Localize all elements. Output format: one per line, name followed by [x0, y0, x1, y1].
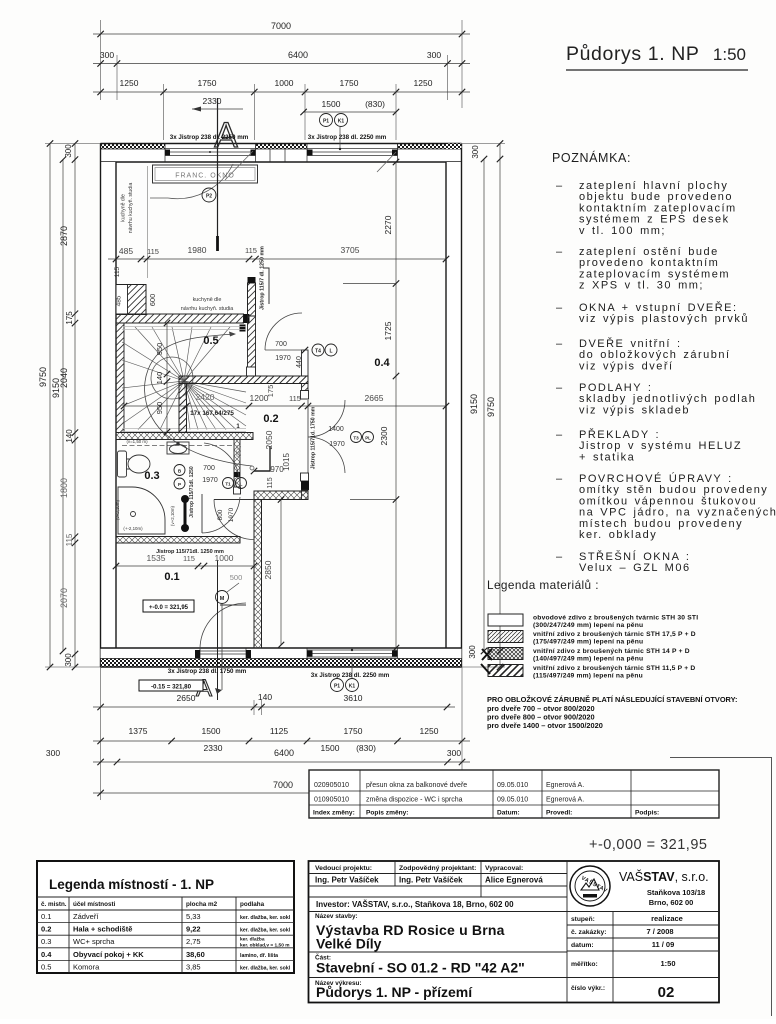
svg-text:č. zakázky:: č. zakázky: — [571, 929, 607, 936]
svg-text:L: L — [240, 482, 243, 487]
svg-text:010905010: 010905010 — [314, 797, 349, 804]
svg-text:1750: 1750 — [344, 726, 363, 736]
svg-text:1000: 1000 — [215, 553, 234, 563]
svg-text:140: 140 — [258, 692, 272, 702]
svg-text:kuchyně dle: kuchyně dle — [121, 194, 127, 222]
svg-text:950: 950 — [155, 343, 164, 356]
svg-text:1250: 1250 — [420, 726, 439, 736]
svg-text:0.2: 0.2 — [263, 413, 278, 425]
svg-text:PL: PL — [365, 436, 371, 441]
svg-text:0.5: 0.5 — [41, 962, 51, 971]
svg-text:300: 300 — [468, 645, 477, 659]
svg-text:DVEŘE vnitřní :: DVEŘE vnitřní : — [579, 337, 682, 350]
svg-text:1750: 1750 — [198, 78, 217, 88]
svg-text:3705: 3705 — [341, 245, 360, 255]
svg-text:3610: 3610 — [344, 693, 363, 703]
svg-text:950: 950 — [155, 402, 164, 415]
svg-text:Komora: Komora — [73, 962, 100, 971]
svg-text:1980: 1980 — [188, 245, 207, 255]
svg-text:09.05.010: 09.05.010 — [497, 797, 528, 804]
svg-text:3x Jistrop 238 dl. 1750 mm: 3x Jistrop 238 dl. 1750 mm — [168, 668, 247, 675]
svg-text:K1: K1 — [338, 119, 345, 125]
svg-text:viz výpis skladeb: viz výpis skladeb — [579, 404, 690, 416]
svg-text:0.4: 0.4 — [374, 357, 390, 369]
svg-text:9750: 9750 — [486, 397, 496, 417]
svg-text:(830): (830) — [365, 99, 385, 109]
svg-text:1000: 1000 — [275, 78, 294, 88]
svg-text:objektu bude provedeno: objektu bude provedeno — [579, 191, 733, 203]
svg-text:09.05.010: 09.05.010 — [497, 782, 528, 789]
svg-text:P2: P2 — [206, 194, 212, 200]
svg-text:(300/247/249 mm) lepení na pěn: (300/247/249 mm) lepení na pěnu — [533, 622, 643, 629]
svg-text:0.2: 0.2 — [41, 925, 51, 934]
svg-text:P1: P1 — [323, 119, 329, 125]
svg-text:vnitřní zdivo z broušených tár: vnitřní zdivo z broušených tárnic STH 14… — [533, 648, 690, 655]
svg-text:(+-2,10m): (+-2,10m) — [123, 526, 143, 531]
svg-text:2050: 2050 — [264, 430, 274, 449]
svg-text:1:50: 1:50 — [660, 959, 675, 968]
svg-text:020905010: 020905010 — [314, 782, 349, 789]
svg-text:2300: 2300 — [379, 426, 389, 445]
svg-text:1970: 1970 — [202, 477, 218, 484]
svg-text:38,60: 38,60 — [186, 950, 205, 959]
svg-text:zateplení hlavní plochy: zateplení hlavní plochy — [579, 180, 728, 192]
svg-text:Ing. Petr Vašíček: Ing. Petr Vašíček — [315, 876, 379, 885]
svg-text:1015: 1015 — [282, 453, 291, 471]
svg-text:do obložkových zárubní: do obložkových zárubní — [579, 349, 731, 361]
svg-text:1250: 1250 — [414, 78, 433, 88]
svg-text:PRO OBLOŽKOVÉ ZÁRUBNĚ PLATÍ: PRO OBLOŽKOVÉ ZÁRUBNĚ PLATÍ NÁSLEDUJÍCÍ … — [487, 695, 737, 704]
svg-text:300: 300 — [64, 144, 73, 158]
svg-text:Půdorys 1. NP: Půdorys 1. NP — [566, 43, 700, 65]
svg-text:2850: 2850 — [263, 560, 273, 579]
svg-text:Stavební - SO 01.2 - RD "42 A2: Stavební - SO 01.2 - RD "42 A2" — [316, 960, 525, 976]
svg-text:T1: T1 — [225, 482, 231, 487]
svg-text:OKNA + vstupní DVEŘE:: OKNA + vstupní DVEŘE: — [579, 301, 738, 314]
svg-text:0.1: 0.1 — [41, 912, 51, 921]
svg-text:ker. dlažba, ker. sokl: ker. dlažba, ker. sokl — [240, 915, 291, 921]
svg-text:PODLAHY :: PODLAHY : — [579, 382, 653, 394]
svg-text:115: 115 — [245, 246, 257, 255]
svg-text:účel místnosti: účel místnosti — [73, 901, 116, 908]
svg-text:ker. dlažba: ker. dlažba — [240, 937, 265, 943]
svg-text:viz výpis dveří: viz výpis dveří — [579, 360, 674, 372]
svg-text:9,22: 9,22 — [186, 925, 201, 934]
svg-text:2,75: 2,75 — [186, 937, 201, 946]
svg-text:2330: 2330 — [203, 96, 222, 106]
svg-text:1400: 1400 — [328, 426, 344, 433]
svg-text:obvodové zdivo z broušených t: obvodové zdivo z broušených tvárnic STH … — [533, 615, 698, 622]
svg-text:115: 115 — [289, 394, 301, 403]
svg-text:Vedoucí projektu:: Vedoucí projektu: — [315, 865, 372, 872]
svg-text:3x Jistrop 238 dl. 2250 mm: 3x Jistrop 238 dl. 2250 mm — [170, 134, 249, 141]
svg-text:02: 02 — [658, 984, 675, 1001]
svg-text:(175/497/249 mm) lepení na pěn: (175/497/249 mm) lepení na pěnu — [533, 639, 643, 646]
svg-text:(v=1,50 m): (v=1,50 m) — [126, 439, 148, 444]
svg-text:na VPC jádro, na vyznačených: na VPC jádro, na vyznačených — [579, 507, 776, 519]
svg-text:Index změny:: Index změny: — [313, 810, 355, 817]
svg-text:z XPS v tl. 30 mm;: z XPS v tl. 30 mm; — [579, 280, 704, 292]
svg-text:vnitřní zdivo z broušených tár: vnitřní zdivo z broušených tárnic STH 17… — [533, 631, 696, 638]
svg-text:2330: 2330 — [204, 743, 223, 753]
svg-text:–: – — [556, 302, 563, 314]
svg-text:115: 115 — [65, 533, 74, 546]
svg-text:3x Jistrop 238 dl. 2250 mm: 3x Jistrop 238 dl. 2250 mm — [308, 134, 387, 141]
svg-text:Vypracoval:: Vypracoval: — [485, 865, 523, 872]
svg-text:–: – — [556, 180, 563, 192]
svg-text:Zádveří: Zádveří — [73, 912, 99, 921]
svg-text:115: 115 — [114, 266, 121, 277]
svg-text:kuchyně dle: kuchyně dle — [193, 297, 222, 303]
svg-text:K1: K1 — [349, 684, 356, 690]
svg-text:1800: 1800 — [59, 478, 69, 498]
svg-text:600: 600 — [148, 294, 157, 307]
svg-text:Investor: VAŠSTAV, s.r.o.,: Investor: VAŠSTAV, s.r.o., Staňkova 18, … — [316, 900, 514, 909]
svg-text:2070: 2070 — [59, 588, 69, 608]
svg-text:–: – — [556, 551, 563, 563]
svg-text:11 / 09: 11 / 09 — [652, 940, 675, 949]
svg-text:skladby jednotlivých podlah: skladby jednotlivých podlah — [579, 393, 756, 405]
svg-text:–: – — [556, 429, 563, 441]
svg-text:115: 115 — [183, 554, 195, 563]
svg-text:6400: 6400 — [274, 748, 294, 758]
svg-text:0.3: 0.3 — [41, 937, 51, 946]
svg-text:3,85: 3,85 — [186, 962, 201, 971]
svg-text:návrhu kuchyň. studia: návrhu kuchyň. studia — [128, 183, 134, 234]
svg-text:PŘEKLADY :: PŘEKLADY : — [579, 428, 660, 441]
svg-text:300: 300 — [46, 748, 60, 758]
svg-text:(v=2,10m): (v=2,10m) — [115, 500, 120, 520]
svg-text:v tl. 100 mm;: v tl. 100 mm; — [579, 225, 666, 237]
svg-text:485: 485 — [119, 246, 133, 256]
svg-text:0.1: 0.1 — [164, 571, 179, 583]
svg-text:P: P — [178, 482, 181, 487]
svg-text:1125: 1125 — [270, 726, 289, 736]
svg-text:2270: 2270 — [383, 215, 393, 234]
svg-text:Staňkova 103/18: Staňkova 103/18 — [647, 888, 705, 897]
svg-text:datum:: datum: — [571, 942, 594, 949]
svg-text:140: 140 — [65, 429, 74, 443]
svg-text:omítky stěn budou provedeny: omítky stěn budou provedeny — [579, 484, 768, 496]
svg-text:pro dveře 1400 – otvor 1500/: pro dveře 1400 – otvor 1500/2020 — [487, 721, 603, 730]
svg-text:3x Jistrop 238 dl. 2250 mm: 3x Jistrop 238 dl. 2250 mm — [311, 672, 390, 679]
svg-text:2420: 2420 — [196, 392, 215, 402]
svg-text:175: 175 — [65, 311, 74, 325]
svg-text:P1: P1 — [334, 684, 340, 690]
svg-text:Egnerová A.: Egnerová A. — [546, 797, 584, 804]
svg-text:1725: 1725 — [383, 321, 393, 340]
svg-text:1500: 1500 — [321, 743, 340, 753]
svg-text:Jistrop 115/71dl. 1250: Jistrop 115/71dl. 1250 — [189, 466, 195, 518]
svg-text:plocha m2: plocha m2 — [186, 901, 218, 908]
svg-text:0.4: 0.4 — [41, 950, 52, 959]
svg-text:T4: T4 — [315, 349, 321, 355]
svg-text:2870: 2870 — [59, 226, 69, 246]
svg-text:Legenda místností - 1. NP: Legenda místností - 1. NP — [49, 877, 214, 892]
svg-text:2040: 2040 — [59, 368, 69, 388]
svg-text:–: – — [556, 338, 563, 350]
svg-text:-0.15 = 321,80: -0.15 = 321,80 — [151, 684, 192, 691]
svg-text:300: 300 — [427, 50, 441, 60]
svg-text:(115/497/249 mm) lepení na pěn: (115/497/249 mm) lepení na pěnu — [533, 673, 643, 680]
svg-text:300: 300 — [471, 145, 480, 159]
svg-text:Datum:: Datum: — [497, 810, 520, 817]
svg-text:Legenda materiálů :: Legenda materiálů : — [487, 578, 599, 592]
svg-text:L: L — [329, 349, 332, 355]
svg-text:600: 600 — [234, 445, 243, 458]
svg-text:Velux – GZL M06: Velux – GZL M06 — [579, 562, 691, 574]
svg-text:175: 175 — [266, 385, 275, 398]
svg-text:kontaktním zateplovacím: kontaktním zateplovacím — [579, 202, 737, 214]
svg-text:2650: 2650 — [177, 693, 196, 703]
svg-text:M: M — [220, 596, 225, 602]
svg-text:zateplení ostění bude: zateplení ostění bude — [579, 246, 719, 258]
svg-text:viz výpis plastových prvků: viz výpis plastových prvků — [579, 313, 749, 325]
svg-text:1500: 1500 — [322, 99, 341, 109]
svg-text:Egnerová A.: Egnerová A. — [546, 782, 584, 789]
svg-text:1535: 1535 — [147, 553, 166, 563]
svg-text:700: 700 — [203, 465, 215, 472]
svg-text:změna dispozice - WC i sprcha: změna dispozice - WC i sprcha — [366, 797, 463, 804]
svg-text:9150: 9150 — [469, 394, 479, 414]
svg-text:115: 115 — [267, 477, 274, 488]
svg-text:1750: 1750 — [340, 78, 359, 88]
svg-text:Velké Díly: Velké Díly — [316, 936, 382, 952]
svg-text:T3: T3 — [353, 436, 359, 441]
svg-text:vnitřní zdivo z broušených tár: vnitřní zdivo z broušených tárnic STH 11… — [533, 665, 695, 672]
svg-text:(v+2,10m): (v+2,10m) — [170, 506, 175, 526]
svg-text:POZNÁMKA:: POZNÁMKA: — [552, 150, 631, 165]
svg-text:systémem z EPS desek: systémem z EPS desek — [579, 214, 730, 226]
svg-text:2665: 2665 — [365, 393, 384, 403]
svg-text:300: 300 — [100, 50, 114, 60]
svg-text:místech budou provedeny: místech budou provedeny — [579, 518, 743, 530]
svg-text:VAŠSTAV, s.r.o.: VAŠSTAV, s.r.o. — [619, 869, 709, 884]
svg-text:Půdorys 1. NP - přízemí: Půdorys 1. NP - přízemí — [316, 984, 473, 1000]
svg-text:Jistrop v systému HELUZ: Jistrop v systému HELUZ — [579, 440, 742, 452]
svg-text:STŘEŠNÍ OKNA :: STŘEŠNÍ OKNA : — [579, 550, 690, 563]
svg-text:ker. dlažba, ker. sokl: ker. dlažba, ker. sokl — [240, 965, 291, 971]
svg-text:–: – — [556, 473, 563, 485]
svg-text:300: 300 — [64, 653, 73, 667]
svg-text:300: 300 — [447, 748, 461, 758]
svg-text:800: 800 — [217, 509, 224, 520]
svg-text:Brno, 602 00: Brno, 602 00 — [649, 898, 694, 907]
svg-text:měřítko:: měřítko: — [571, 961, 598, 968]
svg-text:ker. obklad,v = 1,50 m: ker. obklad,v = 1,50 m — [240, 943, 289, 949]
svg-text:Jistrop 115/71d. 1750 mm: Jistrop 115/71d. 1750 mm — [311, 406, 317, 469]
svg-text:(140/497/249 mm) lepení na pěn: (140/497/249 mm) lepení na pěnu — [533, 656, 643, 663]
svg-text:–: – — [556, 246, 563, 258]
svg-text:Obyvací pokoj + KK: Obyvací pokoj + KK — [73, 950, 144, 959]
svg-text:17x 167,64/275: 17x 167,64/275 — [190, 410, 234, 417]
svg-text:Podpis:: Podpis: — [635, 810, 659, 817]
svg-text:7000: 7000 — [273, 780, 293, 790]
svg-text:0.3: 0.3 — [144, 470, 159, 482]
svg-text:podlaha: podlaha — [240, 901, 265, 908]
svg-text:700: 700 — [275, 341, 287, 348]
svg-text:1500: 1500 — [202, 726, 221, 736]
svg-text:7 / 2008: 7 / 2008 — [646, 927, 673, 936]
svg-text:+-0.0 = 321,95: +-0.0 = 321,95 — [149, 605, 189, 611]
svg-text:ker. dlažba, ker. sokl: ker. dlažba, ker. sokl — [240, 928, 291, 934]
svg-text:0.5: 0.5 — [203, 335, 218, 347]
svg-text:115: 115 — [147, 247, 159, 256]
svg-text:440: 440 — [296, 356, 303, 368]
svg-text:Název stavby:: Název stavby: — [315, 913, 358, 920]
svg-text:realizace: realizace — [651, 914, 683, 923]
svg-text:Popis změny:: Popis změny: — [366, 810, 409, 817]
svg-text:1375: 1375 — [129, 726, 148, 736]
svg-text:+ statika: + statika — [579, 451, 635, 463]
svg-text:lamino, dř. lišta: lamino, dř. lišta — [240, 953, 278, 959]
svg-text:Zodpovědný projektant:: Zodpovědný projektant: — [399, 865, 476, 872]
svg-text:–: – — [556, 382, 563, 394]
svg-text:č. mistn.: č. mistn. — [41, 901, 67, 908]
svg-text:Alice Egnerová: Alice Egnerová — [485, 876, 543, 885]
svg-text:POVRCHOVÉ ÚPRAVY :: POVRCHOVÉ ÚPRAVY : — [579, 472, 733, 485]
svg-text:Ing. Petr Vašíček: Ing. Petr Vašíček — [399, 876, 463, 885]
svg-text:140: 140 — [155, 372, 164, 385]
svg-text:ker. obklady: ker. obklady — [579, 529, 657, 541]
svg-text:Provedl:: Provedl: — [546, 810, 572, 817]
svg-text:číslo výkr.:: číslo výkr.: — [571, 985, 605, 992]
svg-text:Jistrop 115/7 dl. 1250 mm: Jistrop 115/7 dl. 1250 mm — [260, 246, 266, 310]
svg-text:7000: 7000 — [271, 21, 291, 31]
svg-text:485: 485 — [116, 295, 123, 306]
svg-text:1:50: 1:50 — [713, 45, 746, 64]
svg-text:1970: 1970 — [275, 355, 291, 362]
svg-text:500: 500 — [230, 573, 243, 582]
svg-text:9750: 9750 — [38, 367, 48, 387]
svg-text:provedeno kontaktním: provedeno kontaktním — [579, 257, 719, 269]
svg-text:návrhu kuchyň. studia: návrhu kuchyň. studia — [181, 306, 233, 312]
svg-text:stupeň:: stupeň: — [571, 916, 595, 923]
svg-text:WC+ sprcha: WC+ sprcha — [73, 937, 115, 946]
svg-text:1250: 1250 — [120, 78, 139, 88]
svg-text:5,33: 5,33 — [186, 912, 201, 921]
svg-text:Hala + schodiště: Hala + schodiště — [73, 925, 132, 934]
svg-text:6400: 6400 — [288, 50, 308, 60]
svg-text:přesun okna za balkonové dveř: přesun okna za balkonové dveře — [366, 782, 467, 789]
svg-text:+-0,000 = 321,95: +-0,000 = 321,95 — [589, 837, 707, 853]
svg-text:1970: 1970 — [329, 441, 345, 448]
svg-text:omítkou vápennou štukovou: omítkou vápennou štukovou — [579, 495, 757, 507]
svg-text:zateplovacím systémem: zateplovacím systémem — [579, 268, 730, 280]
svg-text:(830): (830) — [356, 743, 376, 753]
